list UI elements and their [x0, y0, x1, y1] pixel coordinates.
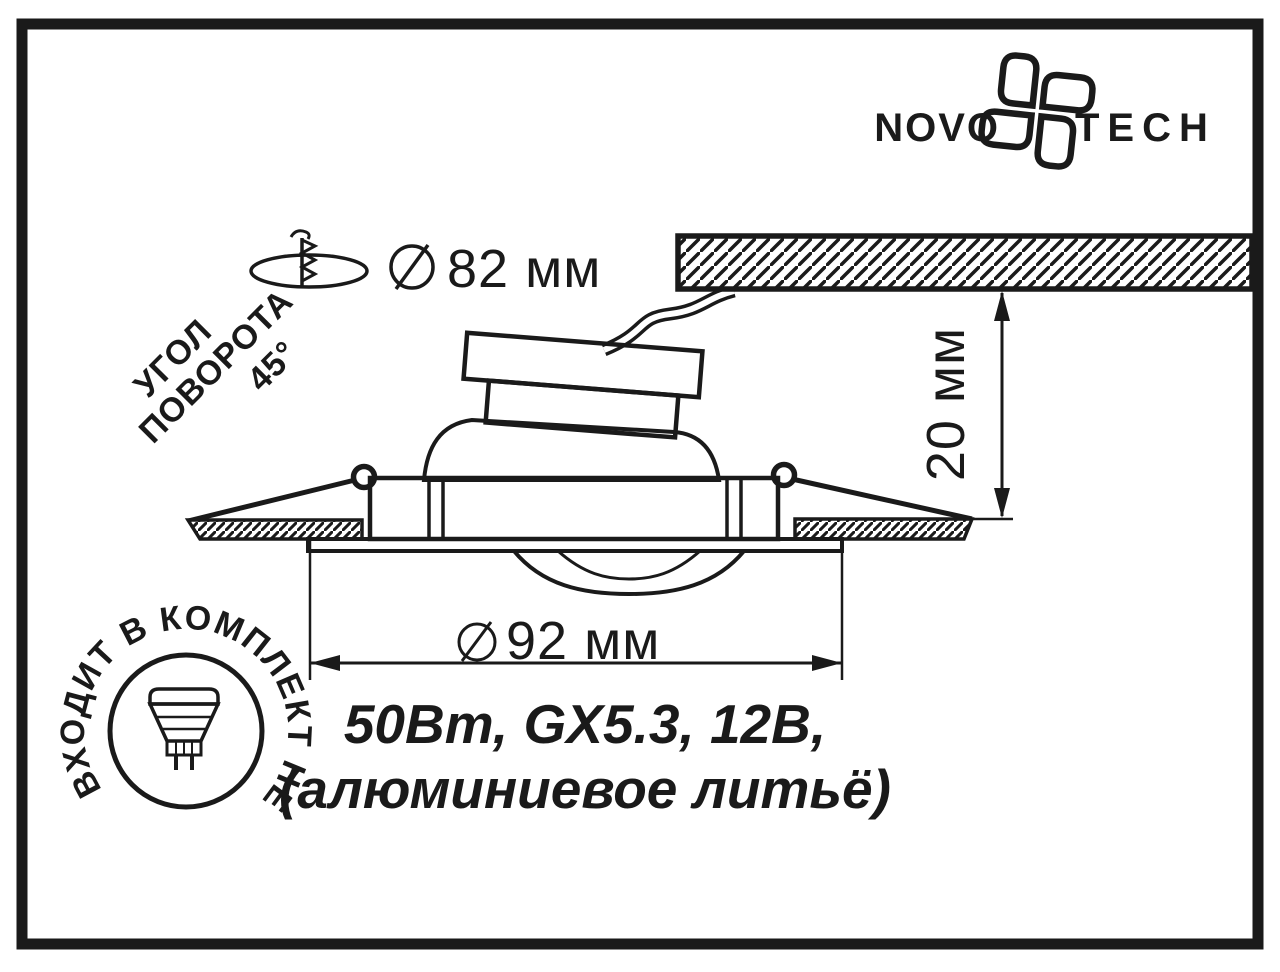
mounting-hole-icon: [251, 231, 367, 288]
stamp-circle: [110, 655, 262, 807]
cutout-diameter-dimension: 82 мм: [391, 239, 601, 299]
mr16-lamp-icon: [150, 689, 218, 770]
fixture-body: [370, 478, 778, 539]
spotlight-installation-diagram: NOVO TECH 82 мм УГОЛ ПОВОРОТА 45°: [0, 0, 1280, 972]
terminal-block-upper: [464, 333, 703, 397]
lamp-bezel: [514, 551, 744, 594]
material-spec-line: (алюминиевое литьё): [279, 758, 891, 820]
fixture-drawing: [188, 236, 1252, 594]
lamp-not-included-stamp: ВХОДИТ В КОМПЛЕКТ НЕ: [54, 598, 318, 833]
logo-word-right: TECH: [1075, 106, 1216, 150]
svg-text:ВХОДИТ В КОМПЛЕКТ НЕ: ВХОДИТ В КОМПЛЕКТ НЕ: [54, 598, 318, 819]
stamp-circular-text: ВХОДИТ В КОМПЛЕКТ НЕ: [54, 598, 318, 819]
diameter-symbol: [391, 245, 433, 289]
lamp-spec-line: 50Вт, GX5.3, 12В,: [344, 693, 826, 755]
pivot-right: [774, 465, 795, 486]
ceiling-panel-left: [188, 520, 362, 539]
ceiling-panel-right: [795, 519, 972, 539]
rotation-angle-label: УГОЛ ПОВОРОТА 45°: [106, 256, 329, 479]
ceiling-slab: [678, 236, 1252, 289]
recess-depth-dimension: 20 мм: [916, 291, 1013, 519]
diagram-page: NOVO TECH 82 мм УГОЛ ПОВОРОТА 45°: [0, 0, 1280, 972]
outer-diameter-value: 92 мм: [506, 611, 660, 671]
novotech-logo: NOVO TECH: [874, 53, 1216, 169]
outer-diameter-dimension: 92 мм: [310, 541, 842, 680]
supply-wire: [604, 291, 734, 350]
cutout-diameter-value: 82 мм: [447, 239, 601, 299]
spring-clip-right: [792, 479, 972, 519]
diameter-symbol: [459, 622, 495, 661]
recess-depth-value: 20 мм: [916, 327, 976, 481]
spring-clip-left: [188, 480, 355, 521]
